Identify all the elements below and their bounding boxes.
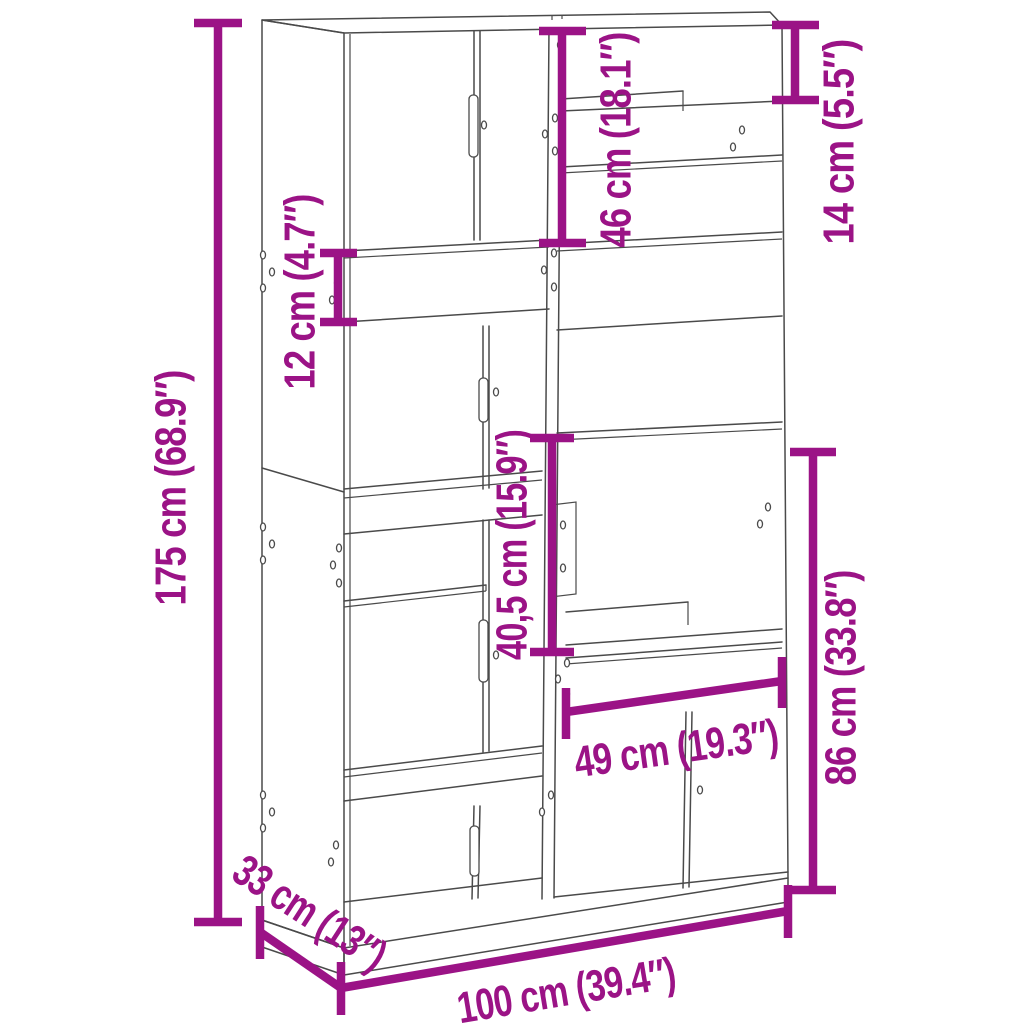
divider-slot xyxy=(470,826,479,876)
divider-slot xyxy=(479,378,488,422)
half-shelf xyxy=(344,585,486,607)
side-panel-joint xyxy=(262,468,344,492)
dim-right-opening-86: 86 cm (33.8″) xyxy=(790,452,865,890)
dim-top-section-46-label: 46 cm (18.1″) xyxy=(591,33,640,248)
right-edge xyxy=(782,25,788,878)
ledge-shelf xyxy=(566,602,782,664)
dim-opening-width-49-line xyxy=(566,681,782,712)
bottom-shelf xyxy=(344,878,542,902)
dim-right-opening-86-label: 86 cm (33.8″) xyxy=(816,571,865,786)
dim-top-gap-14-label: 14 cm (5.5″) xyxy=(814,40,863,245)
dim-depth-33: 33 cm (13″) xyxy=(224,845,395,988)
dim-total-height-label: 175 cm (68.9″) xyxy=(146,371,195,606)
dim-top-section-46: 46 cm (18.1″) xyxy=(539,31,640,248)
dim-mid-section-40-5: 40,5 cm (15.9″) xyxy=(487,430,574,660)
divider-slot xyxy=(469,95,478,157)
dim-total-height: 175 cm (68.9″) xyxy=(146,23,242,922)
dim-depth-33-label: 33 cm (13″) xyxy=(224,845,395,980)
dimension-diagram: 175 cm (68.9″) 12 cm (4.7″) 46 cm (18.1″… xyxy=(0,0,1024,1024)
dim-total-width: 100 cm (39.4″) xyxy=(341,885,788,1024)
top-panel xyxy=(262,12,782,33)
dim-opening-width-49: 49 cm (19.3″) xyxy=(566,657,782,787)
dim-shelf-gap-12-label: 12 cm (4.7″) xyxy=(275,195,324,390)
dim-mid-section-40-5-label: 40,5 cm (15.9″) xyxy=(487,430,536,660)
dim-shelf-gap-12: 12 cm (4.7″) xyxy=(275,195,357,390)
shelf-band xyxy=(344,746,542,801)
bookcase-dimension-diagram: 175 cm (68.9″) 12 cm (4.7″) 46 cm (18.1″… xyxy=(0,0,1024,1024)
shelf xyxy=(557,422,782,440)
dim-opening-width-49-label: 49 cm (19.3″) xyxy=(571,710,781,787)
shelf-band xyxy=(344,240,549,322)
bottom-shelf xyxy=(554,872,788,897)
dim-top-gap-14: 14 cm (5.5″) xyxy=(772,25,863,245)
